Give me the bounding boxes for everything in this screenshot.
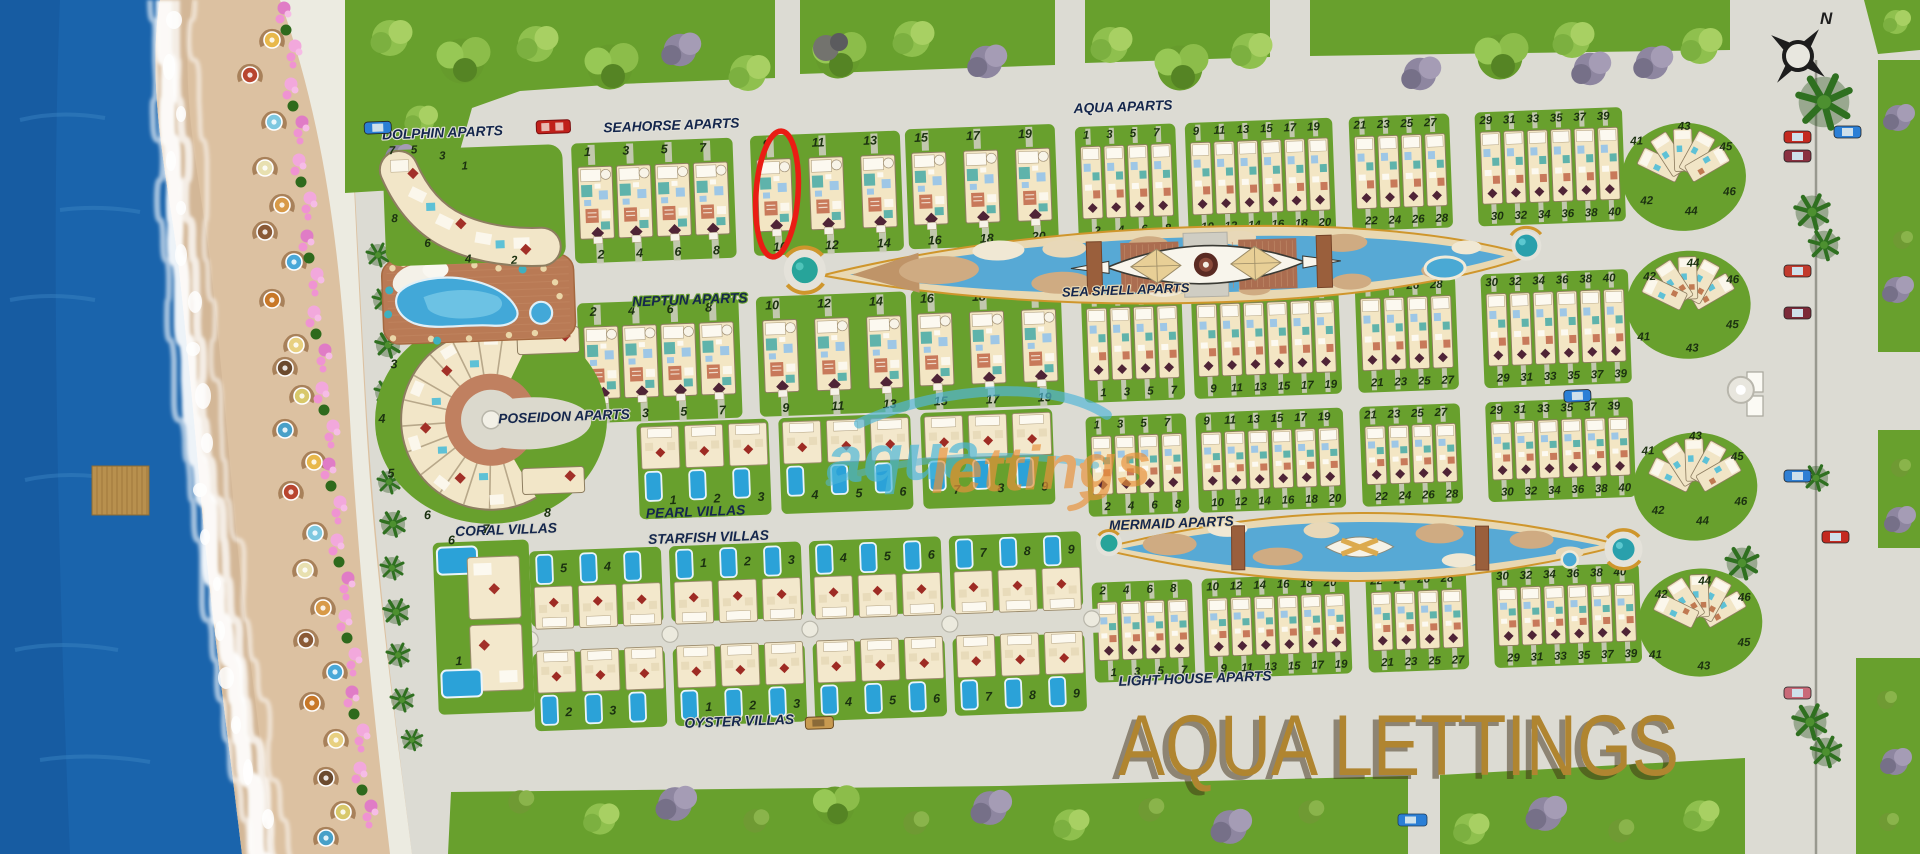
- svg-text:31: 31: [1503, 114, 1516, 126]
- svg-text:14: 14: [877, 236, 891, 251]
- svg-text:45: 45: [1725, 319, 1740, 332]
- svg-text:5: 5: [1130, 128, 1137, 140]
- svg-text:4: 4: [1122, 584, 1130, 596]
- svg-text:14: 14: [869, 294, 883, 309]
- svg-text:14: 14: [1253, 579, 1267, 591]
- svg-text:38: 38: [1590, 567, 1604, 579]
- svg-text:46: 46: [1722, 186, 1737, 199]
- svg-text:12: 12: [825, 238, 839, 253]
- svg-text:17: 17: [1294, 412, 1308, 424]
- svg-text:8: 8: [1029, 688, 1037, 702]
- svg-text:23: 23: [1403, 656, 1418, 669]
- svg-text:13: 13: [1247, 414, 1261, 426]
- svg-text:30: 30: [1496, 571, 1510, 583]
- svg-text:3: 3: [1124, 386, 1131, 398]
- svg-text:11: 11: [1231, 382, 1243, 394]
- svg-text:9: 9: [1210, 383, 1217, 395]
- svg-text:15: 15: [1277, 380, 1291, 392]
- svg-text:5: 5: [1147, 385, 1154, 397]
- svg-text:3: 3: [788, 553, 796, 567]
- svg-text:35: 35: [1567, 370, 1581, 382]
- svg-text:lettings: lettings: [930, 430, 1153, 507]
- svg-text:2: 2: [1103, 501, 1111, 513]
- svg-text:6: 6: [1151, 499, 1158, 511]
- svg-text:3: 3: [793, 697, 801, 711]
- svg-text:42: 42: [1654, 589, 1669, 602]
- svg-text:33: 33: [1537, 403, 1551, 415]
- svg-text:29: 29: [1489, 405, 1504, 418]
- svg-text:7: 7: [1164, 417, 1171, 429]
- svg-text:45: 45: [1718, 141, 1733, 154]
- svg-text:1: 1: [1110, 667, 1117, 679]
- svg-text:21: 21: [1380, 657, 1394, 669]
- svg-text:16: 16: [1281, 494, 1295, 506]
- svg-text:19: 19: [1317, 411, 1331, 423]
- svg-text:8: 8: [544, 506, 552, 520]
- svg-text:12: 12: [1234, 496, 1248, 508]
- svg-text:31: 31: [1530, 651, 1543, 663]
- svg-text:10: 10: [765, 298, 779, 313]
- svg-text:4: 4: [377, 412, 386, 426]
- svg-text:3: 3: [622, 143, 630, 157]
- svg-text:8: 8: [1175, 498, 1182, 510]
- svg-text:15: 15: [914, 130, 929, 145]
- svg-text:4: 4: [844, 695, 853, 709]
- svg-text:33: 33: [1526, 113, 1540, 125]
- svg-text:41: 41: [1648, 649, 1662, 661]
- svg-text:4: 4: [635, 246, 644, 260]
- svg-text:27: 27: [1440, 374, 1455, 387]
- svg-text:16: 16: [1277, 579, 1291, 591]
- svg-text:9: 9: [1203, 415, 1210, 427]
- svg-text:9: 9: [1193, 126, 1200, 138]
- svg-text:28: 28: [1444, 488, 1459, 501]
- svg-text:13: 13: [1236, 124, 1250, 136]
- svg-text:40: 40: [1607, 206, 1622, 219]
- svg-text:14: 14: [1258, 495, 1272, 507]
- svg-text:3: 3: [609, 703, 617, 717]
- svg-text:35: 35: [1560, 402, 1574, 414]
- svg-text:1: 1: [705, 700, 713, 714]
- svg-text:1: 1: [700, 556, 708, 570]
- svg-text:44: 44: [1697, 575, 1712, 588]
- svg-text:42: 42: [1639, 195, 1654, 208]
- svg-text:16: 16: [928, 233, 943, 248]
- svg-text:35: 35: [1550, 112, 1564, 124]
- svg-text:44: 44: [1686, 257, 1701, 270]
- svg-text:38: 38: [1579, 273, 1593, 285]
- svg-text:17: 17: [1311, 659, 1325, 671]
- svg-text:AQUA LETTINGS: AQUA LETTINGS: [1118, 698, 1679, 794]
- svg-text:23: 23: [1386, 408, 1401, 421]
- svg-text:29: 29: [1478, 115, 1493, 128]
- svg-text:4: 4: [1127, 500, 1135, 512]
- svg-text:25: 25: [1427, 655, 1442, 668]
- svg-text:4: 4: [603, 559, 612, 573]
- svg-text:7: 7: [1171, 385, 1178, 397]
- svg-text:29: 29: [1496, 372, 1511, 385]
- svg-text:41: 41: [1629, 135, 1643, 147]
- svg-text:17: 17: [1301, 380, 1315, 392]
- svg-text:36: 36: [1566, 568, 1580, 580]
- svg-text:13: 13: [863, 133, 877, 148]
- svg-text:4: 4: [839, 551, 848, 565]
- svg-text:30: 30: [1485, 277, 1499, 289]
- svg-text:21: 21: [1363, 409, 1377, 421]
- svg-text:2: 2: [596, 247, 605, 261]
- svg-text:1: 1: [461, 160, 468, 172]
- svg-text:23: 23: [1393, 376, 1408, 389]
- svg-text:38: 38: [1585, 207, 1599, 219]
- svg-text:36: 36: [1556, 274, 1570, 286]
- svg-text:34: 34: [1548, 485, 1562, 497]
- svg-text:10: 10: [1206, 581, 1220, 593]
- svg-text:27: 27: [1450, 654, 1465, 667]
- svg-text:2: 2: [743, 554, 752, 568]
- svg-text:34: 34: [1532, 275, 1546, 287]
- svg-text:26: 26: [1411, 213, 1426, 226]
- svg-text:43: 43: [1688, 430, 1703, 443]
- svg-text:18: 18: [1305, 493, 1319, 505]
- svg-text:41: 41: [1636, 331, 1650, 343]
- svg-text:46: 46: [1733, 496, 1748, 509]
- svg-text:39: 39: [1607, 400, 1621, 412]
- svg-text:27: 27: [1433, 407, 1448, 420]
- svg-text:37: 37: [1573, 111, 1587, 123]
- svg-text:43: 43: [1696, 660, 1711, 673]
- svg-text:28: 28: [1434, 213, 1449, 226]
- svg-text:3: 3: [390, 357, 398, 371]
- svg-text:43: 43: [1685, 342, 1700, 355]
- svg-text:41: 41: [1640, 445, 1654, 457]
- svg-text:11: 11: [831, 399, 845, 413]
- svg-text:44: 44: [1684, 205, 1699, 218]
- svg-text:21: 21: [1352, 119, 1366, 131]
- svg-text:1: 1: [584, 145, 592, 159]
- svg-text:9: 9: [782, 401, 790, 415]
- svg-text:1: 1: [1093, 419, 1100, 431]
- svg-text:25: 25: [1417, 375, 1432, 388]
- svg-text:32: 32: [1524, 485, 1538, 497]
- svg-text:30: 30: [1491, 210, 1505, 222]
- svg-text:46: 46: [1725, 274, 1740, 287]
- svg-text:35: 35: [1577, 650, 1591, 662]
- svg-text:12: 12: [1230, 580, 1244, 592]
- svg-text:34: 34: [1538, 209, 1552, 221]
- svg-text:19: 19: [1324, 379, 1338, 391]
- svg-text:11: 11: [811, 135, 825, 149]
- svg-text:43: 43: [1677, 121, 1692, 134]
- svg-text:N: N: [1820, 9, 1833, 28]
- svg-text:1: 1: [1100, 387, 1107, 399]
- svg-text:45: 45: [1730, 451, 1745, 464]
- svg-text:9: 9: [1067, 542, 1075, 556]
- svg-text:39: 39: [1614, 368, 1628, 380]
- svg-text:29: 29: [1506, 652, 1521, 665]
- svg-text:32: 32: [1519, 570, 1533, 582]
- svg-text:17: 17: [966, 129, 981, 144]
- svg-text:36: 36: [1561, 208, 1575, 220]
- svg-text:26: 26: [1421, 489, 1436, 502]
- svg-text:2: 2: [510, 255, 518, 267]
- svg-text:13: 13: [1254, 381, 1268, 393]
- svg-text:39: 39: [1624, 648, 1638, 660]
- svg-text:19: 19: [1018, 127, 1032, 142]
- svg-text:6: 6: [424, 238, 431, 250]
- svg-text:3: 3: [1117, 419, 1124, 431]
- svg-text:33: 33: [1544, 371, 1558, 383]
- svg-text:8: 8: [391, 213, 398, 225]
- svg-text:7: 7: [389, 145, 396, 157]
- svg-text:8: 8: [713, 243, 721, 257]
- svg-text:37: 37: [1601, 649, 1615, 661]
- svg-text:32: 32: [1514, 210, 1528, 222]
- svg-text:44: 44: [1695, 515, 1710, 528]
- svg-text:39: 39: [1597, 111, 1611, 123]
- svg-text:11: 11: [1224, 414, 1236, 426]
- svg-text:31: 31: [1513, 404, 1526, 416]
- svg-text:15: 15: [1270, 413, 1284, 425]
- svg-text:3: 3: [1106, 129, 1113, 141]
- svg-text:22: 22: [1364, 215, 1379, 228]
- svg-text:3: 3: [642, 406, 650, 420]
- svg-text:9: 9: [1073, 686, 1081, 700]
- svg-text:8: 8: [1170, 583, 1177, 595]
- svg-text:42: 42: [1651, 505, 1666, 518]
- svg-text:3: 3: [757, 490, 765, 504]
- svg-text:2: 2: [564, 705, 573, 719]
- svg-text:16: 16: [920, 291, 935, 306]
- svg-text:33: 33: [1554, 650, 1568, 662]
- svg-text:1: 1: [1083, 130, 1090, 142]
- svg-text:2: 2: [748, 698, 757, 712]
- svg-text:15: 15: [1288, 660, 1302, 672]
- svg-text:23: 23: [1376, 119, 1391, 132]
- svg-text:17: 17: [1283, 122, 1297, 134]
- svg-text:25: 25: [1399, 118, 1414, 131]
- svg-text:24: 24: [1387, 214, 1402, 227]
- svg-text:45: 45: [1736, 637, 1751, 650]
- svg-text:5: 5: [1140, 418, 1147, 430]
- svg-text:10: 10: [1211, 497, 1225, 509]
- svg-text:15: 15: [1260, 123, 1274, 135]
- svg-text:19: 19: [1334, 658, 1348, 670]
- svg-text:4: 4: [810, 488, 819, 502]
- svg-text:3: 3: [439, 150, 446, 162]
- svg-text:4: 4: [464, 253, 472, 265]
- svg-text:37: 37: [1591, 369, 1605, 381]
- svg-text:7: 7: [1153, 127, 1160, 139]
- svg-text:24: 24: [1397, 490, 1412, 503]
- svg-text:37: 37: [1584, 401, 1598, 413]
- svg-text:38: 38: [1595, 483, 1609, 495]
- svg-text:2: 2: [1098, 585, 1106, 597]
- svg-text:1: 1: [455, 654, 463, 668]
- svg-text:36: 36: [1571, 484, 1585, 496]
- svg-text:21: 21: [1370, 377, 1384, 389]
- svg-text:31: 31: [1520, 372, 1533, 384]
- svg-text:20: 20: [1327, 493, 1342, 506]
- svg-text:11: 11: [1213, 125, 1225, 137]
- svg-text:8: 8: [1023, 544, 1031, 558]
- svg-text:40: 40: [1617, 482, 1632, 495]
- svg-text:6: 6: [1146, 584, 1153, 596]
- svg-text:22: 22: [1374, 491, 1389, 504]
- svg-text:19: 19: [1307, 121, 1321, 133]
- svg-text:2: 2: [588, 305, 597, 319]
- svg-text:40: 40: [1602, 272, 1617, 285]
- svg-text:42: 42: [1642, 271, 1657, 284]
- svg-text:25: 25: [1410, 408, 1425, 421]
- svg-text:5: 5: [411, 144, 418, 156]
- svg-text:27: 27: [1423, 117, 1438, 130]
- svg-text:30: 30: [1501, 486, 1515, 498]
- svg-text:34: 34: [1543, 569, 1557, 581]
- svg-text:12: 12: [817, 296, 831, 311]
- svg-text:32: 32: [1509, 276, 1523, 288]
- svg-text:46: 46: [1737, 592, 1752, 605]
